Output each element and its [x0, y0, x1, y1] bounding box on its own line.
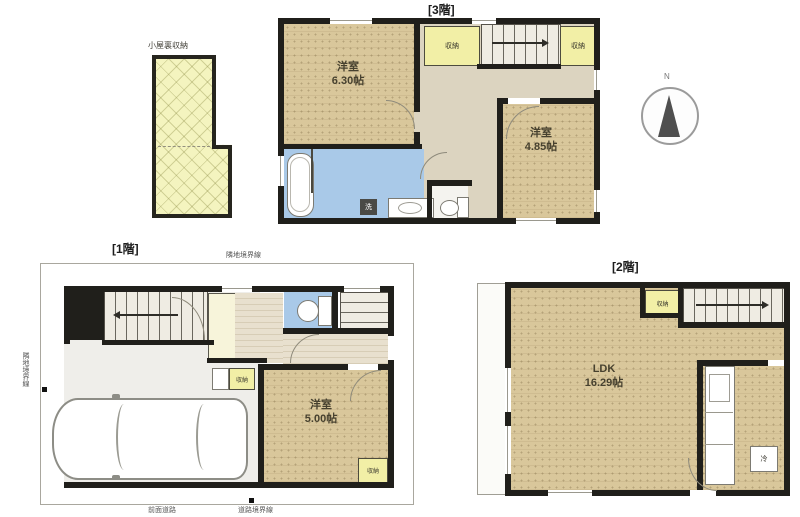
closet-label: 収納 — [445, 41, 459, 51]
floor-plan-canvas: [3階] 収納 収納 洗 — [0, 0, 800, 517]
window-opening — [594, 70, 600, 90]
car-rear-line — [196, 404, 212, 470]
kitchen-sink — [709, 374, 730, 402]
stairs-arrow — [120, 314, 178, 316]
floor3-closet-left: 収納 — [424, 26, 480, 66]
wall — [427, 180, 432, 218]
boundary-label-top: 隣地境界線 — [226, 250, 261, 260]
stairs-arrow — [492, 42, 542, 44]
floor1-upper-stairs — [340, 292, 390, 330]
wall — [283, 328, 390, 334]
closet-label: 収納 — [656, 299, 668, 308]
window-opening — [472, 18, 496, 24]
window-line — [596, 70, 597, 90]
wall — [212, 55, 216, 149]
window-line — [280, 156, 281, 186]
floor2-balcony — [477, 283, 507, 495]
wall — [228, 145, 232, 218]
wall — [284, 144, 422, 149]
floor1-shoe-cabinet — [208, 293, 236, 359]
car-icon — [52, 398, 248, 480]
wall — [152, 214, 232, 218]
floor1-hall — [235, 293, 283, 363]
toilet-bowl-icon — [440, 200, 459, 216]
boundary-marker — [249, 498, 254, 503]
washing-machine-icon: 洗 — [360, 199, 377, 215]
window-line — [472, 20, 496, 21]
stairs-arrow-head — [113, 311, 120, 319]
road-label: 前面道路 — [148, 505, 176, 515]
stairs-arrow-head — [762, 301, 769, 309]
window-line — [507, 426, 508, 474]
toilet-tank-icon — [318, 296, 332, 326]
wall — [477, 64, 561, 69]
window-opening — [516, 218, 556, 224]
bath-partition — [311, 149, 313, 193]
room-name: 洋室 — [305, 398, 337, 412]
floor2-stairs — [683, 288, 785, 326]
window-opening — [344, 286, 380, 292]
room-size: 5.00帖 — [305, 412, 337, 426]
room-size: 4.85帖 — [525, 140, 557, 154]
closet-label: 収納 — [367, 466, 379, 475]
wall — [388, 286, 394, 488]
wall — [152, 55, 156, 218]
closet-label: 収納 — [236, 375, 248, 384]
wall — [152, 55, 216, 59]
wall — [102, 340, 214, 345]
attic-divider-line — [158, 146, 210, 148]
washer-label: 洗 — [365, 202, 372, 212]
attic-storage-area — [154, 57, 232, 216]
floor1-title: [1階] — [112, 240, 139, 257]
bathtub-inner-line — [290, 157, 310, 212]
room-name: LDK — [585, 362, 624, 376]
window-opening — [505, 368, 511, 412]
toilet-bowl-icon — [297, 300, 319, 322]
wall — [207, 358, 267, 363]
window-line — [344, 288, 380, 289]
window-opening — [594, 190, 600, 212]
door-opening — [348, 364, 378, 370]
room-label: LDK 16.29帖 — [585, 362, 624, 391]
room-size: 16.29帖 — [585, 376, 624, 390]
window-opening — [548, 490, 592, 496]
window-line — [596, 190, 597, 212]
boundary-label-left: 隣地境界線 — [20, 352, 30, 387]
compass-north-label: N — [664, 72, 670, 81]
wall — [678, 322, 790, 328]
floor3-closet-right: 収納 — [560, 26, 596, 66]
floor1-nook-storage: 収納 — [229, 368, 255, 390]
car-windshield-line — [116, 404, 132, 470]
room-label: 洋室 4.85帖 — [525, 126, 557, 155]
wall — [64, 286, 70, 344]
counter-divider — [705, 412, 733, 413]
wall — [497, 98, 503, 218]
window-line — [548, 492, 592, 493]
wall — [505, 282, 790, 288]
wall — [64, 482, 394, 488]
wall — [258, 364, 264, 482]
refrigerator-space: 冷 — [750, 446, 778, 472]
boundary-label-bottom: 道路境界線 — [238, 505, 273, 515]
closet-label: 収納 — [571, 41, 585, 51]
window-opening — [330, 18, 372, 24]
wall — [278, 18, 600, 24]
door-opening — [690, 490, 716, 496]
window-opening — [222, 286, 252, 292]
counter-divider — [705, 444, 733, 445]
window-line — [222, 288, 252, 289]
stairs-arrow — [696, 304, 764, 306]
car-mirror — [112, 475, 120, 480]
room-label: 洋室 6.30帖 — [332, 60, 364, 89]
wall — [332, 288, 338, 332]
room-name: 洋室 — [332, 60, 364, 74]
boundary-marker — [42, 387, 47, 392]
door-opening — [508, 98, 540, 104]
wall — [414, 24, 420, 112]
window-line — [516, 220, 556, 221]
stairs-arrow-head — [542, 39, 549, 47]
floor2-title: [2階] — [612, 258, 639, 275]
fridge-label: 冷 — [761, 454, 768, 464]
window-opening — [505, 426, 511, 474]
entrance-opening — [388, 336, 394, 360]
door-opening — [768, 360, 784, 366]
washbasin-bowl — [398, 202, 422, 214]
wall — [427, 180, 472, 186]
car-mirror — [112, 394, 120, 399]
compass-needle-icon — [658, 95, 680, 137]
attic-label: 小屋裏収納 — [148, 40, 188, 51]
floor1-understair-storage — [70, 288, 104, 340]
wall — [784, 282, 790, 496]
room-name: 洋室 — [525, 126, 557, 140]
room-label: 洋室 5.00帖 — [305, 398, 337, 427]
washbasin-icon — [212, 368, 229, 390]
floor1-closet: 収納 — [358, 458, 388, 483]
floor3-title: [3階] — [428, 1, 455, 18]
wall — [278, 18, 284, 224]
window-opening — [278, 156, 284, 186]
room-size: 6.30帖 — [332, 74, 364, 88]
floor3-stairs — [481, 24, 561, 66]
window-line — [507, 368, 508, 412]
window-line — [330, 20, 372, 21]
